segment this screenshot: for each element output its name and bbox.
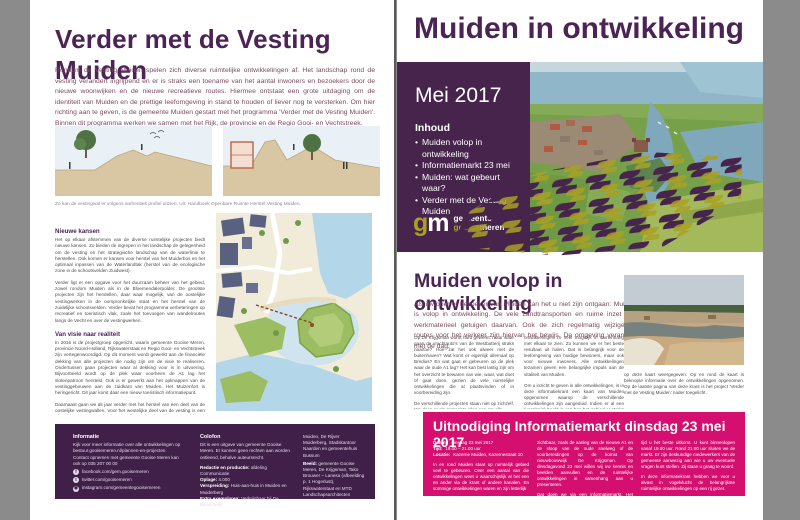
colofon-heading: Colofon	[200, 434, 292, 440]
verspreiding-label: Verspreiding:	[200, 483, 229, 488]
facebook-icon: f	[73, 469, 79, 475]
left-body-column: Nieuwe kansen Het op elkaar afstemmen va…	[55, 228, 205, 415]
issue-date: Mei 2017	[415, 84, 501, 108]
body-paragraph: De verschillende projecten staan niet op…	[414, 401, 514, 409]
page-right: Muiden in ontwikkeling Mei 2017 Inhoud M…	[397, 0, 763, 520]
redactie-label: Redactie en productie:	[200, 465, 250, 470]
body-paragraph: ontwikkelingen zo veel mogelijk in samen…	[524, 335, 624, 378]
logo-word-gooise: gooise	[454, 223, 480, 232]
body-paragraph: op deze kaart weergegeven. Op en rond de…	[624, 372, 744, 396]
inhoud-item: Informatiemarkt 23 mei	[415, 160, 523, 172]
locaties-text: Muiden, De Rijver Muiderberg, Stadskanto…	[303, 434, 365, 459]
rampart-profile-illustration-2	[223, 126, 380, 196]
contact-text: Contact opnemen met gemeente Gooise Mere…	[73, 455, 185, 467]
inhoud-item: Muiden volop in ontwikkeling	[415, 137, 523, 160]
logo-word-meren: meren	[480, 223, 505, 232]
body-paragraph: In 2016 is de projectgroep opgericht, wa…	[55, 340, 205, 397]
colofon-text: Dit is een uitgave van gemeente Gooise M…	[200, 442, 292, 461]
invitation-paragraph: tijd u het beste uitkomt. U kunt binnenl…	[641, 440, 735, 470]
invitation-panel: Uitnodiging Informatiemarkt dinsdag 23 m…	[423, 412, 745, 496]
article-column-1: Op De Krijgsman wordt hard gewerkt, maar…	[414, 335, 514, 409]
section-heading-nieuwe-kansen: Nieuwe kansen	[55, 228, 205, 235]
colophon-panel: Informatie Kijk voor meer informatie ove…	[55, 424, 375, 499]
gemeente-gooise-meren-logo: gm gemeente gooisemeren	[413, 212, 504, 234]
article-column-2: ontwikkelingen zo veel mogelijk in samen…	[524, 335, 624, 409]
body-paragraph: Het op elkaar afstemmen van de diverse r…	[55, 237, 205, 275]
invitation-column-1: Datum:dinsdag 23 mei 2017 Tijd:19.00 – 2…	[433, 440, 529, 496]
article-column-3: op deze kaart weergegeven. Op en rond de…	[624, 372, 744, 408]
invitation-paragraph: zichtbaar, zoals de aanleg van de nieuwe…	[537, 440, 633, 488]
oplage-value: 4.000	[218, 477, 230, 482]
invitation-column-2: zichtbaar, zoals de aanleg van de nieuwe…	[537, 440, 633, 514]
page-left: Verder met de Vesting Muiden Rondom de V…	[30, 0, 394, 520]
facebook-handle: facebook.com/gem.gooisemeren	[82, 469, 149, 475]
figure-caption: Zo kan de vestingwal er volgens authenti…	[55, 202, 385, 207]
right-page-title: Muiden in ontwikkeling	[414, 12, 759, 46]
logo-letter-g: g	[413, 209, 427, 237]
informatie-heading: Informatie	[73, 434, 185, 440]
section-heading-van-visie: Van visie naar realiteit	[55, 331, 205, 338]
invitation-paragraph: In deze informatiekrant hebben we voor u…	[641, 474, 735, 492]
inhoud-heading: Inhoud	[415, 122, 450, 134]
exemplaren-label: Extra exemplaren:	[200, 496, 240, 501]
issue-panel: Mei 2017 Inhoud Muiden volop in ontwikke…	[397, 62, 530, 252]
twitter-handle: twitter.com/gooisemeren	[82, 477, 132, 483]
invitation-column-3: tijd u het beste uitkomt. U kunt binnenl…	[641, 440, 735, 496]
twitter-icon: t	[73, 477, 79, 483]
inhoud-item: Muiden: wat gebeurt waar?	[415, 172, 523, 195]
colophon-credits-column: Muiden, De Rijver Muiderberg, Stadskanto…	[303, 434, 365, 498]
aerial-photo-muiden	[530, 62, 763, 252]
colophon-informatie-column: Informatie Kijk voor meer informatie ove…	[73, 434, 185, 492]
body-paragraph: Daarnaast gaan we dit jaar verder met he…	[55, 402, 205, 415]
body-paragraph: Op De Krijgsman wordt hard gewerkt, maar…	[414, 335, 514, 396]
body-paragraph: Verder ligt er een opgave voor het duurz…	[55, 280, 205, 324]
locatie-value: Kazerne Muiden, Kazernestraat 10	[453, 452, 523, 458]
left-intro-paragraph: Rondom de Vesting Muiden spelen zich div…	[55, 66, 375, 130]
logo-letter-m: m	[427, 209, 448, 237]
oplage-label: Oplage:	[200, 477, 217, 482]
construction-site-photo	[624, 275, 744, 365]
invitation-paragraph: Dat doen we via een informatiemarkt. Het…	[537, 492, 633, 510]
beeld-label: Beeld:	[303, 461, 317, 466]
informatie-text: Kijk voor meer informatie over alle ontw…	[73, 442, 185, 454]
instagram-icon: ◉	[73, 486, 79, 492]
logo-word-gemeente: gemeente	[454, 214, 505, 223]
instagram-handle: instagram.com/gemeentegooisemeren	[82, 485, 160, 491]
rampart-profile-illustration-1	[55, 126, 212, 196]
invitation-paragraph: In en rond Muiden staat op ruimtelijk ge…	[433, 462, 529, 492]
vesting-muiden-map-illustration	[216, 213, 372, 411]
locatie-label: Locatie:	[433, 452, 450, 458]
body-paragraph: Om u inzicht te geven in alle ontwikkeli…	[524, 383, 624, 409]
beeld-value: gemeente Gooise Meren, De Krijgsman, Tak…	[303, 461, 364, 497]
newsletter-spread: Verder met de Vesting Muiden Rondom de V…	[0, 0, 800, 520]
inhoud-list: Muiden volop in ontwikkeling Informatiem…	[415, 137, 523, 218]
colophon-column: Colofon Dit is een uitgave van gemeente …	[200, 434, 292, 508]
